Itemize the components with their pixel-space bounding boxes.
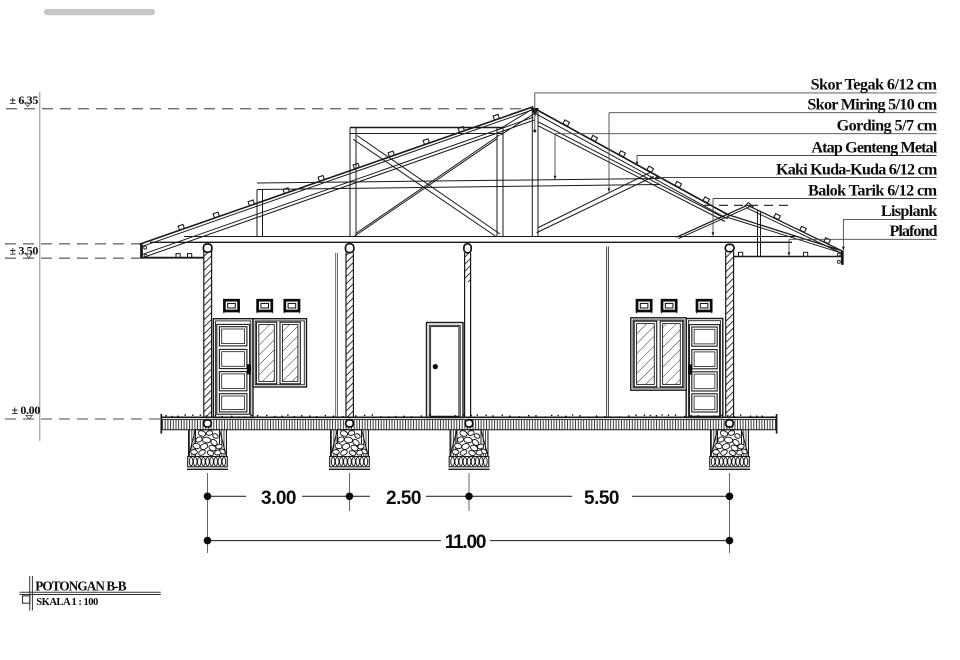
svg-text:SKALA 1 : 100: SKALA 1 : 100 bbox=[36, 597, 98, 608]
svg-text:Atap Genteng Metal: Atap Genteng Metal bbox=[811, 138, 938, 156]
svg-text:11.00: 11.00 bbox=[445, 532, 486, 553]
svg-text:Balok Tarik 6/12 cm: Balok Tarik 6/12 cm bbox=[808, 181, 938, 199]
svg-text:Skor Miring 5/10 cm: Skor Miring 5/10 cm bbox=[807, 96, 937, 114]
svg-text:Kaki Kuda-Kuda 6/12 cm: Kaki Kuda-Kuda 6/12 cm bbox=[776, 160, 938, 178]
svg-text:3.00: 3.00 bbox=[261, 488, 296, 509]
svg-text:Skor Tegak 6/12 cm: Skor Tegak 6/12 cm bbox=[811, 76, 938, 94]
svg-text:2.50: 2.50 bbox=[386, 488, 421, 509]
svg-text:POTONGAN B-B: POTONGAN B-B bbox=[35, 578, 127, 593]
svg-text:± 3.50: ± 3.50 bbox=[10, 244, 39, 258]
svg-text:5.50: 5.50 bbox=[584, 488, 619, 509]
svg-text:± 6.35: ± 6.35 bbox=[10, 93, 39, 107]
svg-text:Lisplank: Lisplank bbox=[881, 202, 937, 220]
svg-text:Gording 5/7 cm: Gording 5/7 cm bbox=[837, 117, 938, 135]
svg-text:Plafond: Plafond bbox=[890, 222, 938, 240]
